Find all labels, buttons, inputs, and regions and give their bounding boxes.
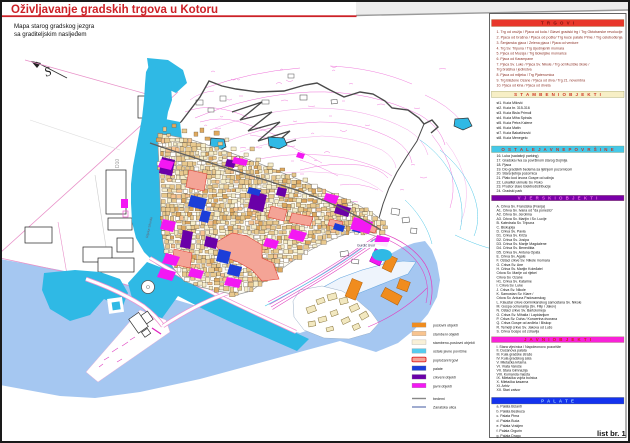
- svg-text:crkveni objekti: crkveni objekti: [433, 376, 456, 380]
- svg-text:2. Pjaca od brašna / Pjaca od: 2. Pjaca od brašna / Pjaca od pošte/ Trg…: [497, 36, 623, 40]
- svg-text:5. Pjaca od Muzeja / Trg Boke: 5. Pjaca od Muzeja / Trg Bokeljske morna…: [497, 52, 567, 56]
- svg-text:b. Palata Beskuća: b. Palata Beskuća: [497, 409, 525, 413]
- svg-text:8. Pjaca od mlijeka / Trg Pja: 8. Pjaca od mlijeka / Trg Pjaterovnica: [497, 73, 555, 77]
- svg-text:st2. Kuća br. 315-316: st2. Kuća br. 315-316: [497, 106, 530, 110]
- svg-text:f. Palata Grgurin: f. Palata Grgurin: [497, 429, 523, 433]
- svg-text:O S T A L E J A V N E P O: O S T A L E J A V N E P O V R Š I N E: [501, 147, 614, 152]
- svg-text:D10: D10: [115, 159, 121, 168]
- svg-text:1. Trg od oružja / Pjaca od k: 1. Trg od oružja / Pjaca od kola / Glavn…: [497, 30, 623, 34]
- svg-text:javni objekti: javni objekti: [432, 384, 452, 388]
- svg-text:10. Pjaca od kina / Pjaca od d: 10. Pjaca od kina / Pjaca od drveta: [497, 84, 551, 88]
- svg-text:stambeno-poslovni objekti: stambeno-poslovni objekti: [433, 341, 475, 345]
- svg-text:ostale javne površine: ostale javne površine: [433, 350, 467, 354]
- svg-text:stambeni objekti: stambeni objekti: [433, 332, 459, 336]
- svg-text:Oživljavanje gradskih trgova u: Oživljavanje gradskih trgova u Kotoru: [11, 4, 218, 16]
- svg-text:XII. Stari zatvor: XII. Stari zatvor: [497, 388, 522, 392]
- svg-text:J A V N I O B J E K T I: J A V N I O B J E K T I: [524, 337, 592, 342]
- svg-text:6. Pjaca od Karampane: 6. Pjaca od Karampane: [497, 57, 534, 61]
- svg-text:Gurdić izvor: Gurdić izvor: [357, 244, 376, 248]
- svg-text:d. Palata Buća: d. Palata Buća: [497, 419, 520, 423]
- svg-text:P A L A T E: P A L A T E: [541, 398, 575, 403]
- svg-text:list br. 1: list br. 1: [597, 429, 626, 438]
- svg-text:S. Crkva Gospe od zdravlja: S. Crkva Gospe od zdravlja: [497, 330, 540, 334]
- svg-text:c. Palata Pima: c. Palata Pima: [497, 414, 520, 418]
- svg-text:st8. Kuća Menegeto: st8. Kuća Menegeto: [497, 136, 528, 140]
- svg-text:3. Šenjanska pjaca / Zelena p: 3. Šenjanska pjaca / Zelena pjaca / Pjac…: [497, 40, 579, 45]
- svg-text:g. Palata Drago: g. Palata Drago: [497, 434, 521, 438]
- svg-text:Trg bratstva i jedinstva: Trg bratstva i jedinstva: [497, 68, 532, 72]
- svg-text:4. Trg Sv. Tripuna / Trg Ujed: 4. Trg Sv. Tripuna / Trg Ujedinjenih mor…: [497, 46, 565, 50]
- svg-text:T R G O V I: T R G O V I: [541, 21, 575, 26]
- svg-text:V J E R S K I O B J E K T I: V J E R S K I O B J E K T I: [518, 196, 599, 201]
- svg-text:palate: palate: [433, 367, 443, 371]
- svg-text:st1. Kuća Milović: st1. Kuća Milović: [497, 101, 524, 105]
- svg-text:st4. Kuća Miha Spirala: st4. Kuća Miha Spirala: [497, 116, 532, 120]
- svg-text:24. Gradski park: 24. Gradski park: [497, 189, 523, 193]
- svg-text:bedemi: bedemi: [433, 397, 445, 401]
- svg-text:Mapa starog gradskog jezgra: Mapa starog gradskog jezgra: [14, 23, 95, 30]
- svg-text:poslovni objekti: poslovni objekti: [433, 324, 458, 328]
- svg-text:9. Trg Blažene Ozane / Pjaca: 9. Trg Blažene Ozane / Pjaca od drva / T…: [497, 78, 586, 82]
- svg-text:st3. Kuća Bisla Primuli: st3. Kuća Bisla Primuli: [497, 111, 532, 115]
- svg-text:7. Pjaca Sv. Luke / Pjaca Sv.: 7. Pjaca Sv. Luke / Pjaca Sv. Nikole / T…: [497, 62, 590, 66]
- svg-text:Zanatska ulica: Zanatska ulica: [433, 406, 456, 410]
- svg-text:st5. Kuća Petra Kalene: st5. Kuća Petra Kalene: [497, 121, 533, 125]
- svg-text:st6. Kuća Matin: st6. Kuća Matin: [497, 126, 521, 130]
- svg-text:sa graditeljskim nasljeđem: sa graditeljskim nasljeđem: [14, 31, 87, 38]
- svg-text:e. Palata Vrakjen: e. Palata Vrakjen: [497, 424, 524, 428]
- svg-text:a. Palata Bizanti: a. Palata Bizanti: [497, 404, 523, 408]
- svg-text:popločani trgovi: popločani trgovi: [433, 358, 458, 362]
- svg-text:S T A M B E N I O B J E K T: S T A M B E N I O B J E K T I: [514, 92, 602, 97]
- svg-text:st7. Kuća Bakašinović: st7. Kuća Bakašinović: [497, 131, 531, 135]
